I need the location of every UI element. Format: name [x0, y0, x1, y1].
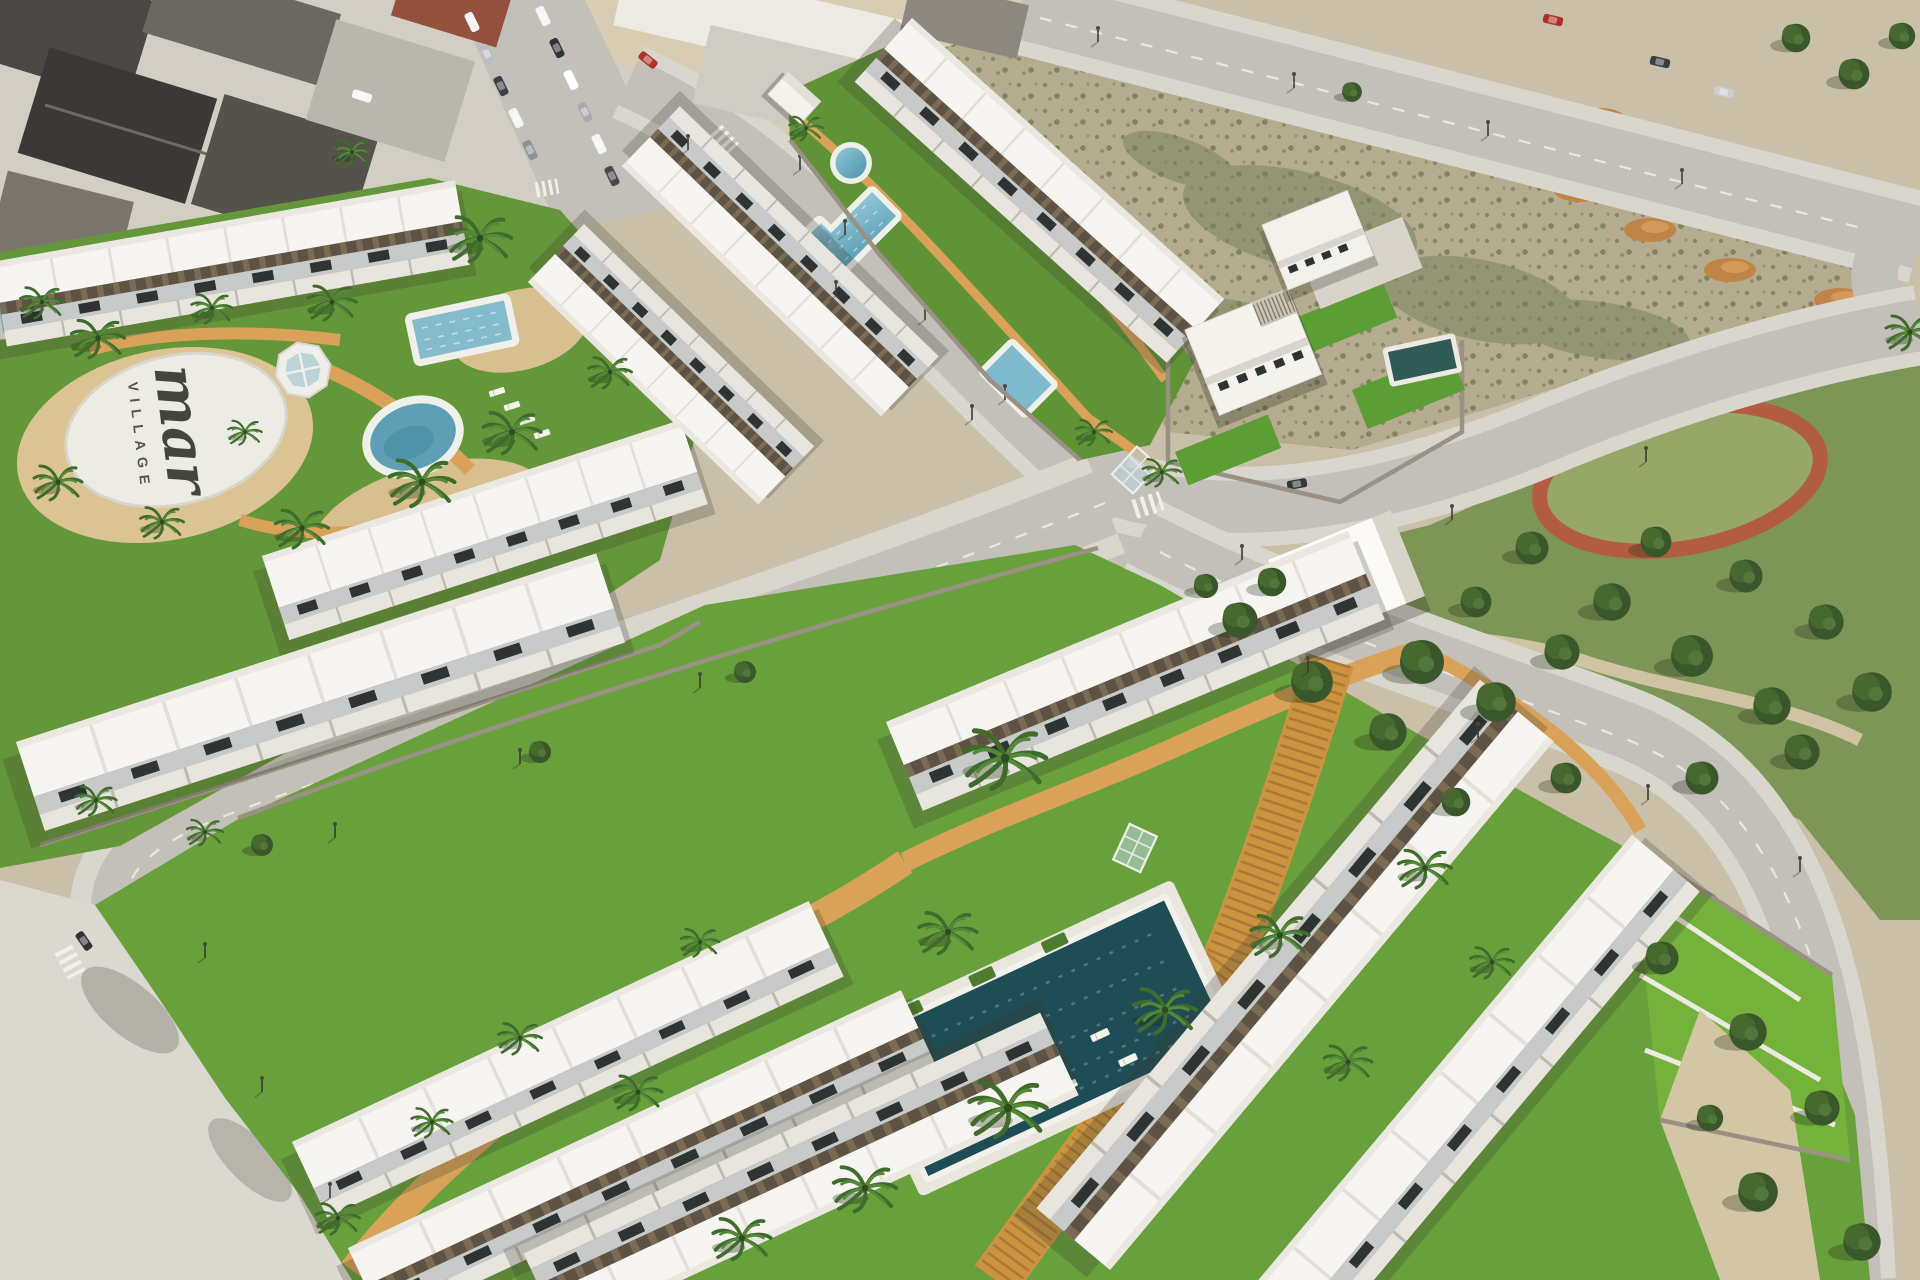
- splash-pool: [836, 148, 867, 179]
- ground-logo: mar VILLAGE: [123, 361, 224, 504]
- scene-canvas: mar VILLAGE: [0, 0, 1920, 1280]
- aerial-render: mar VILLAGE: [0, 0, 1920, 1280]
